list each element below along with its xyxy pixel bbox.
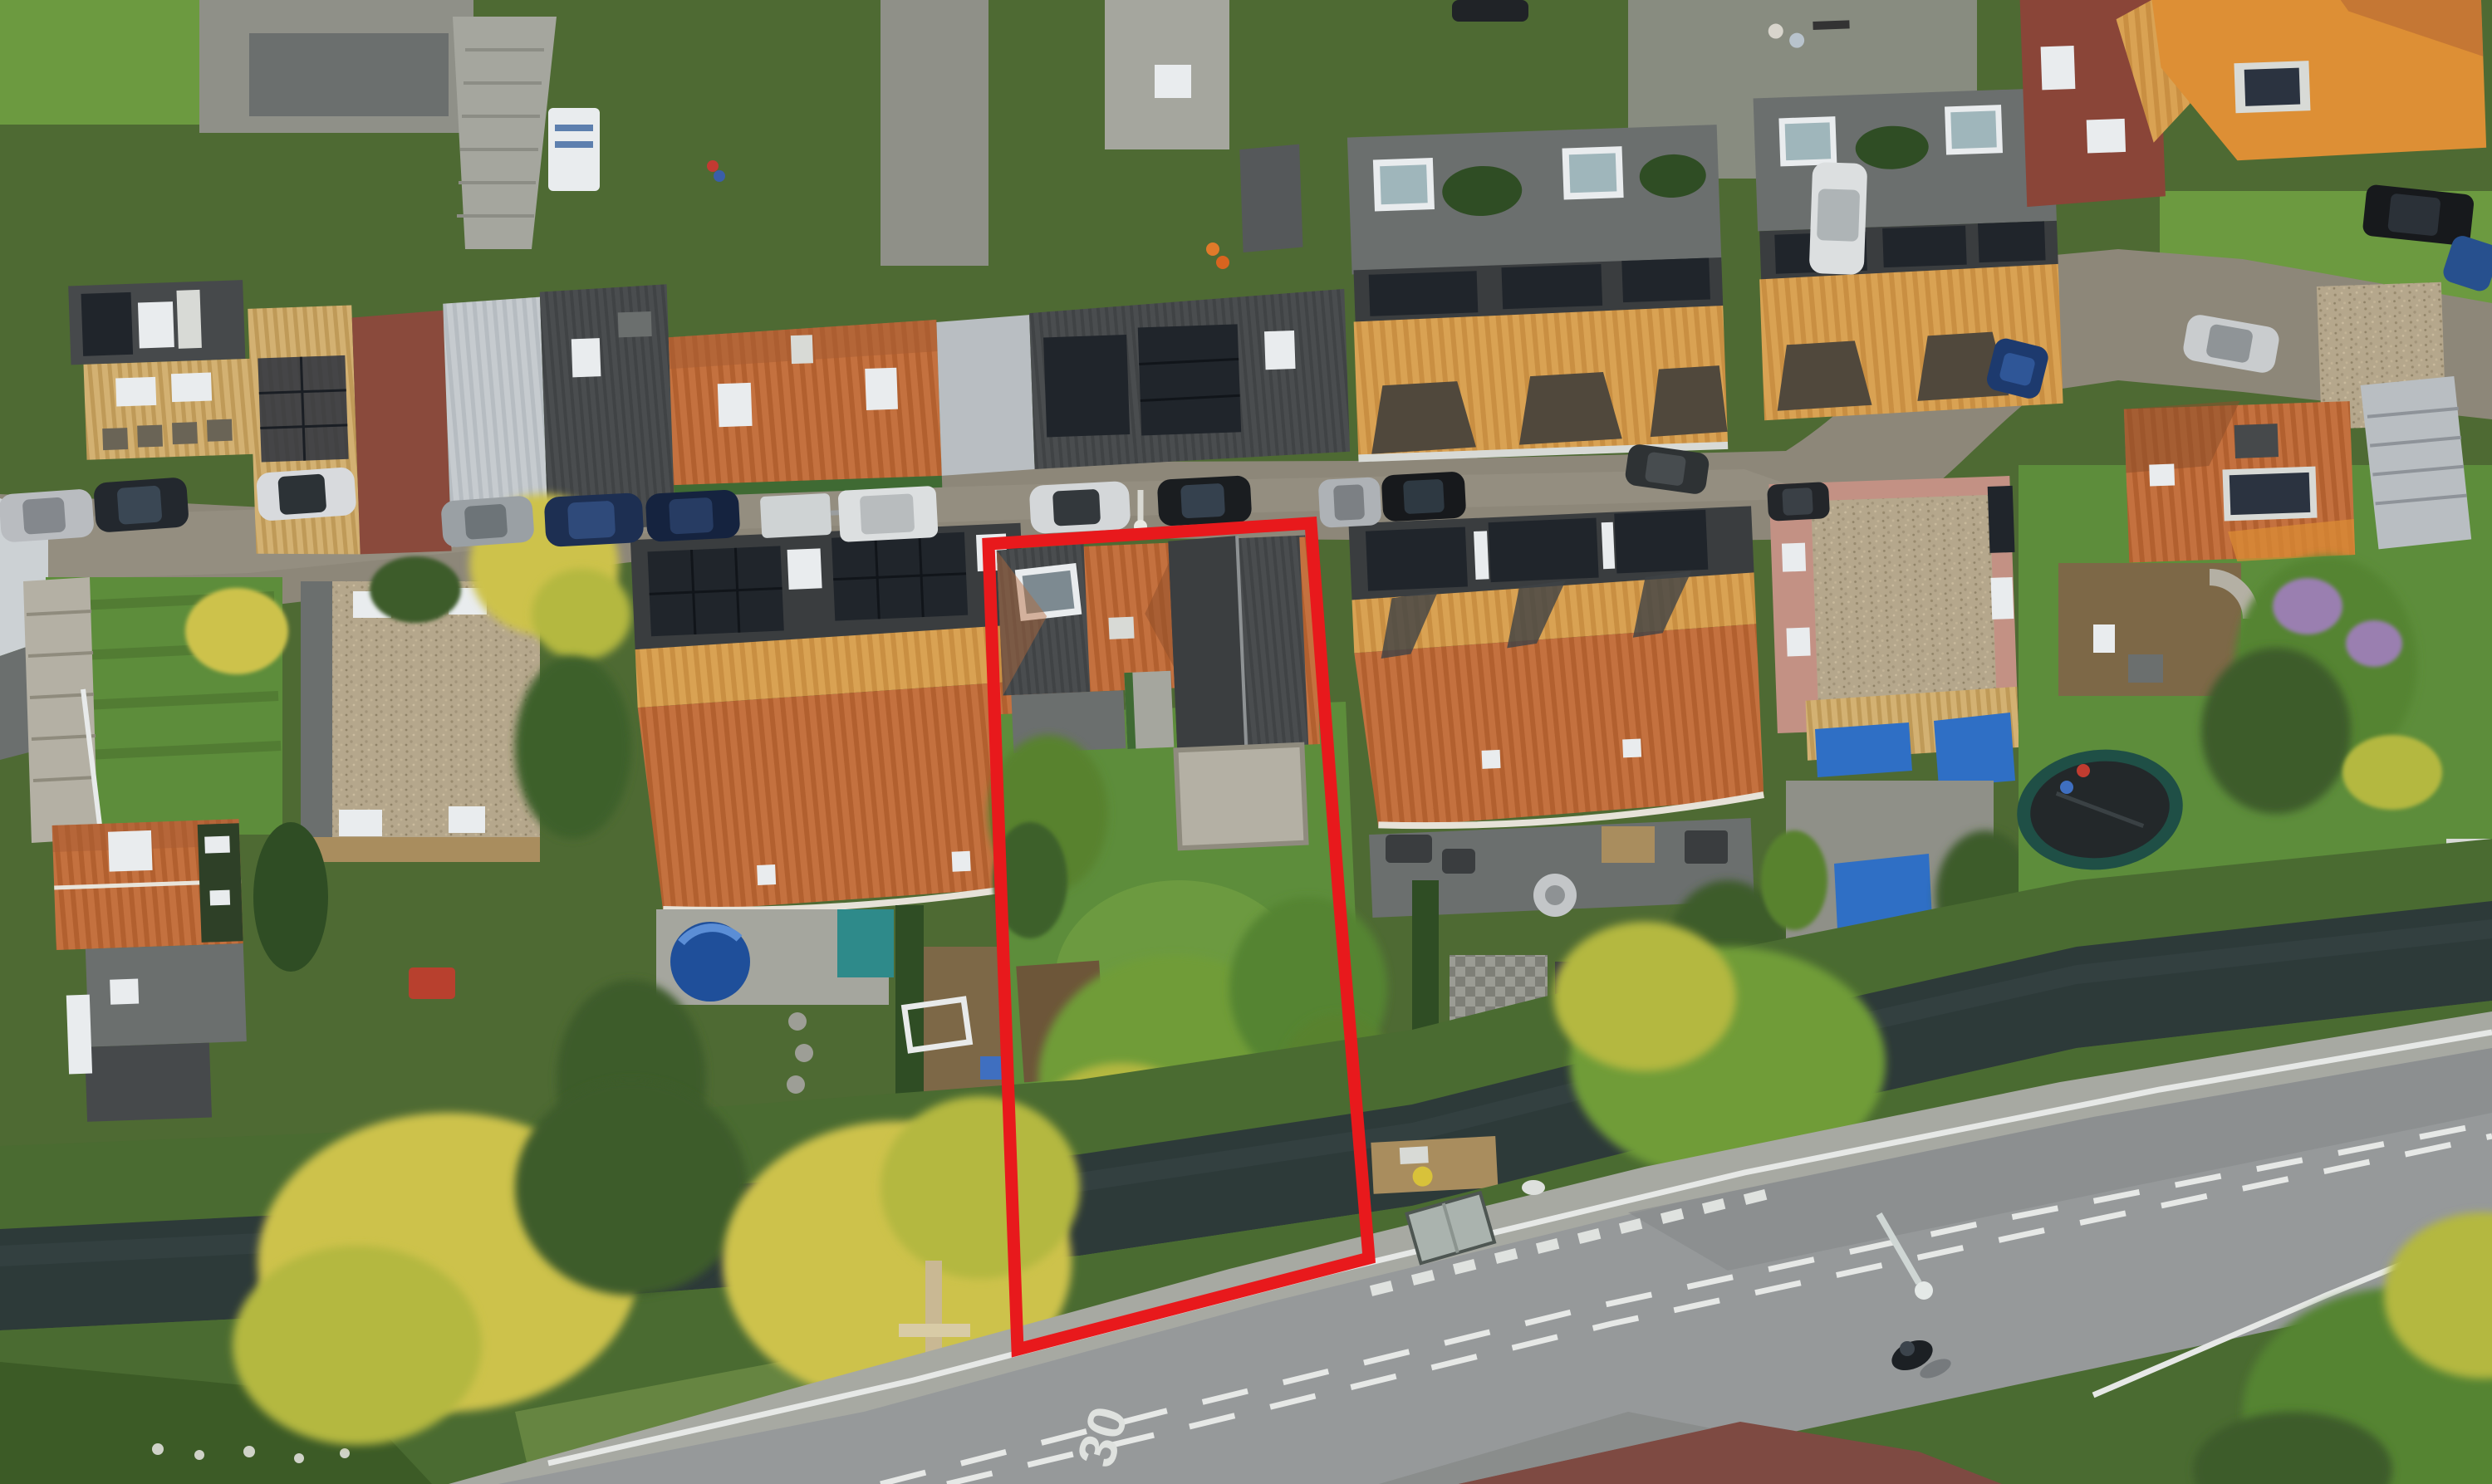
car-black xyxy=(1157,475,1253,527)
portacabin xyxy=(548,108,600,191)
right-double-house xyxy=(1349,506,1765,830)
hedge xyxy=(253,822,328,972)
plot-house xyxy=(997,540,1187,754)
concrete-patio xyxy=(1175,745,1306,849)
chimney xyxy=(1622,738,1641,757)
person-red xyxy=(707,160,719,172)
sunlit-tree2 xyxy=(532,569,631,660)
top-left-lawn xyxy=(0,0,233,125)
terraced-block-1 xyxy=(1347,125,1728,462)
bush xyxy=(1761,830,1827,930)
aerial-photo: 30 xyxy=(0,0,2492,1484)
blue-tarp-small xyxy=(1815,722,1912,777)
dark-tree-canal xyxy=(515,1080,748,1295)
house-orange-gables xyxy=(668,320,942,497)
house-tan-b xyxy=(248,306,360,558)
roof-slope xyxy=(637,681,1037,913)
red-ladder xyxy=(409,967,455,999)
dark-tree xyxy=(370,556,461,623)
teal-cover xyxy=(837,909,894,977)
stair-structure xyxy=(2360,376,2471,550)
car-blue-1 xyxy=(544,492,645,547)
plot-barn xyxy=(1168,532,1320,750)
skylight xyxy=(787,548,822,590)
house-silver-roof xyxy=(936,315,1035,476)
van-white xyxy=(838,486,939,542)
portacabin-stripe2 xyxy=(555,141,593,148)
sunlit-tree-large2 xyxy=(233,1246,482,1445)
chimney xyxy=(1482,750,1501,769)
small-marker xyxy=(1522,1180,1545,1195)
car-dark-top xyxy=(1452,0,1528,22)
white-chair xyxy=(2093,624,2115,653)
portacabin-stripe xyxy=(555,125,593,131)
worker-orange xyxy=(1206,242,1219,256)
detached-house xyxy=(2124,397,2356,565)
big-trees2 xyxy=(2201,648,2351,814)
roof-slope xyxy=(1354,624,1764,829)
house-tan-a xyxy=(68,280,257,461)
wooden-dock xyxy=(1371,1136,1498,1194)
car-small-dark xyxy=(1767,482,1830,522)
person-blue xyxy=(714,170,725,182)
yellow-bush xyxy=(185,588,288,674)
car-silver xyxy=(0,488,95,543)
chimney xyxy=(952,851,971,872)
car-dark-suv xyxy=(93,477,189,533)
gravel-path xyxy=(881,0,988,266)
car-black-2 xyxy=(1381,471,1467,522)
car-white-black xyxy=(256,467,357,522)
table xyxy=(2128,654,2163,683)
blue-tarp-small2 xyxy=(1934,713,2015,787)
worker-orange2 xyxy=(1216,256,1229,269)
car-white xyxy=(1029,481,1131,534)
toy-blue xyxy=(2060,781,2073,794)
wood-table xyxy=(1602,826,1655,863)
chimney xyxy=(757,864,776,885)
car-silver-2 xyxy=(1318,477,1382,528)
paver-pad xyxy=(1155,65,1191,98)
toy-red xyxy=(2077,764,2090,777)
garden-trees xyxy=(515,656,631,839)
aerial-photo-canvas: 30 xyxy=(0,0,2492,1484)
sunlit-bush xyxy=(2342,735,2442,810)
canal-tree-right2 xyxy=(1553,922,1736,1071)
bicycle xyxy=(1813,20,1849,30)
house-maroon-roof xyxy=(352,311,452,555)
car-gray xyxy=(440,495,535,548)
sunlit-tree-edge xyxy=(881,1096,1080,1279)
lilac-blossom xyxy=(2273,578,2342,634)
car-navy xyxy=(645,489,741,542)
car-white-driveway xyxy=(1809,162,1868,275)
deck xyxy=(249,33,449,116)
lilac-blossom2 xyxy=(2346,620,2402,667)
spiral-stair-core xyxy=(1545,885,1565,905)
garden-shed-roof xyxy=(1239,144,1302,252)
